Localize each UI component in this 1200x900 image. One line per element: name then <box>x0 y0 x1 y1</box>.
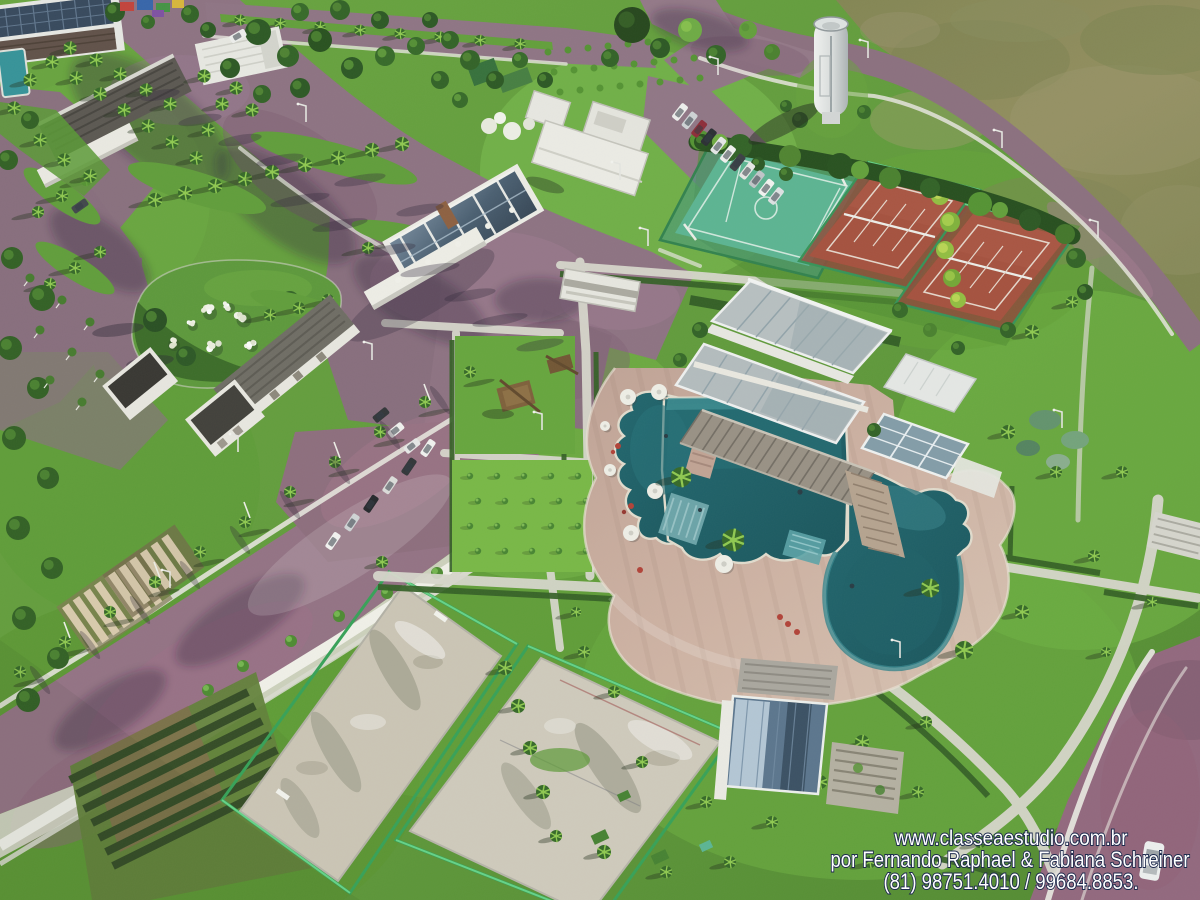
svg-text:(81) 98751.4010 / 99684.8853.: (81) 98751.4010 / 99684.8853. <box>884 869 1139 894</box>
